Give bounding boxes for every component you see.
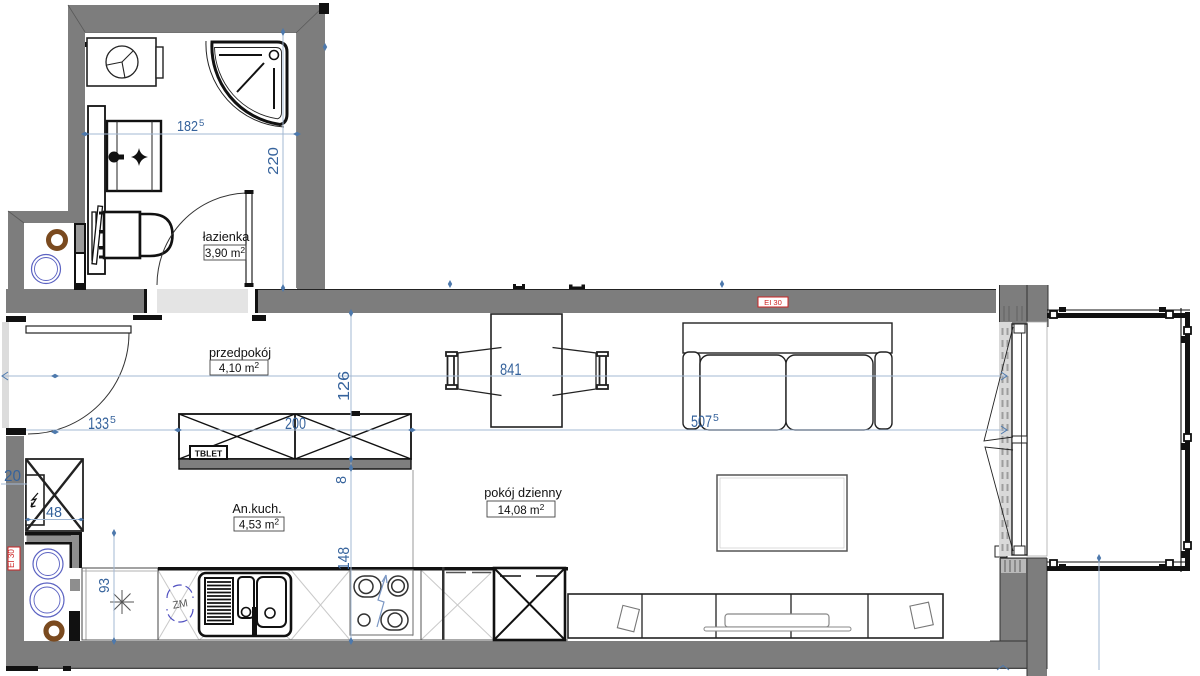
svg-text:ZM: ZM [172,597,189,611]
svg-text:8: 8 [334,476,350,484]
svg-text:182: 182 [177,119,198,135]
svg-text:220: 220 [265,147,282,175]
svg-text:5: 5 [199,118,204,129]
svg-text:200: 200 [285,415,306,433]
svg-text:93: 93 [97,578,113,593]
svg-text:pokój dzienny: pokój dzienny [484,486,562,500]
svg-text:łazienka: łazienka [203,230,250,244]
svg-text:133: 133 [88,415,109,433]
svg-text:4,10 m2: 4,10 m2 [219,360,259,375]
svg-text:48: 48 [46,504,62,521]
svg-text:4,53 m2: 4,53 m2 [239,517,279,532]
svg-text:An.kuch.: An.kuch. [232,502,281,516]
svg-text:5: 5 [713,412,719,424]
svg-text:148: 148 [336,547,353,570]
svg-text:507: 507 [691,413,712,431]
svg-text:20: 20 [4,468,21,485]
svg-text:TBLET: TBLET [195,449,223,459]
svg-text:3,90 m2: 3,90 m2 [205,245,245,260]
svg-text:126: 126 [336,371,353,401]
svg-text:EI 30: EI 30 [764,298,782,307]
svg-text:5: 5 [110,414,116,426]
svg-text:przedpokój: przedpokój [209,346,271,360]
svg-text:841: 841 [500,361,522,379]
svg-text:14,08 m2: 14,08 m2 [498,502,545,517]
svg-text:EI 30: EI 30 [7,549,16,568]
